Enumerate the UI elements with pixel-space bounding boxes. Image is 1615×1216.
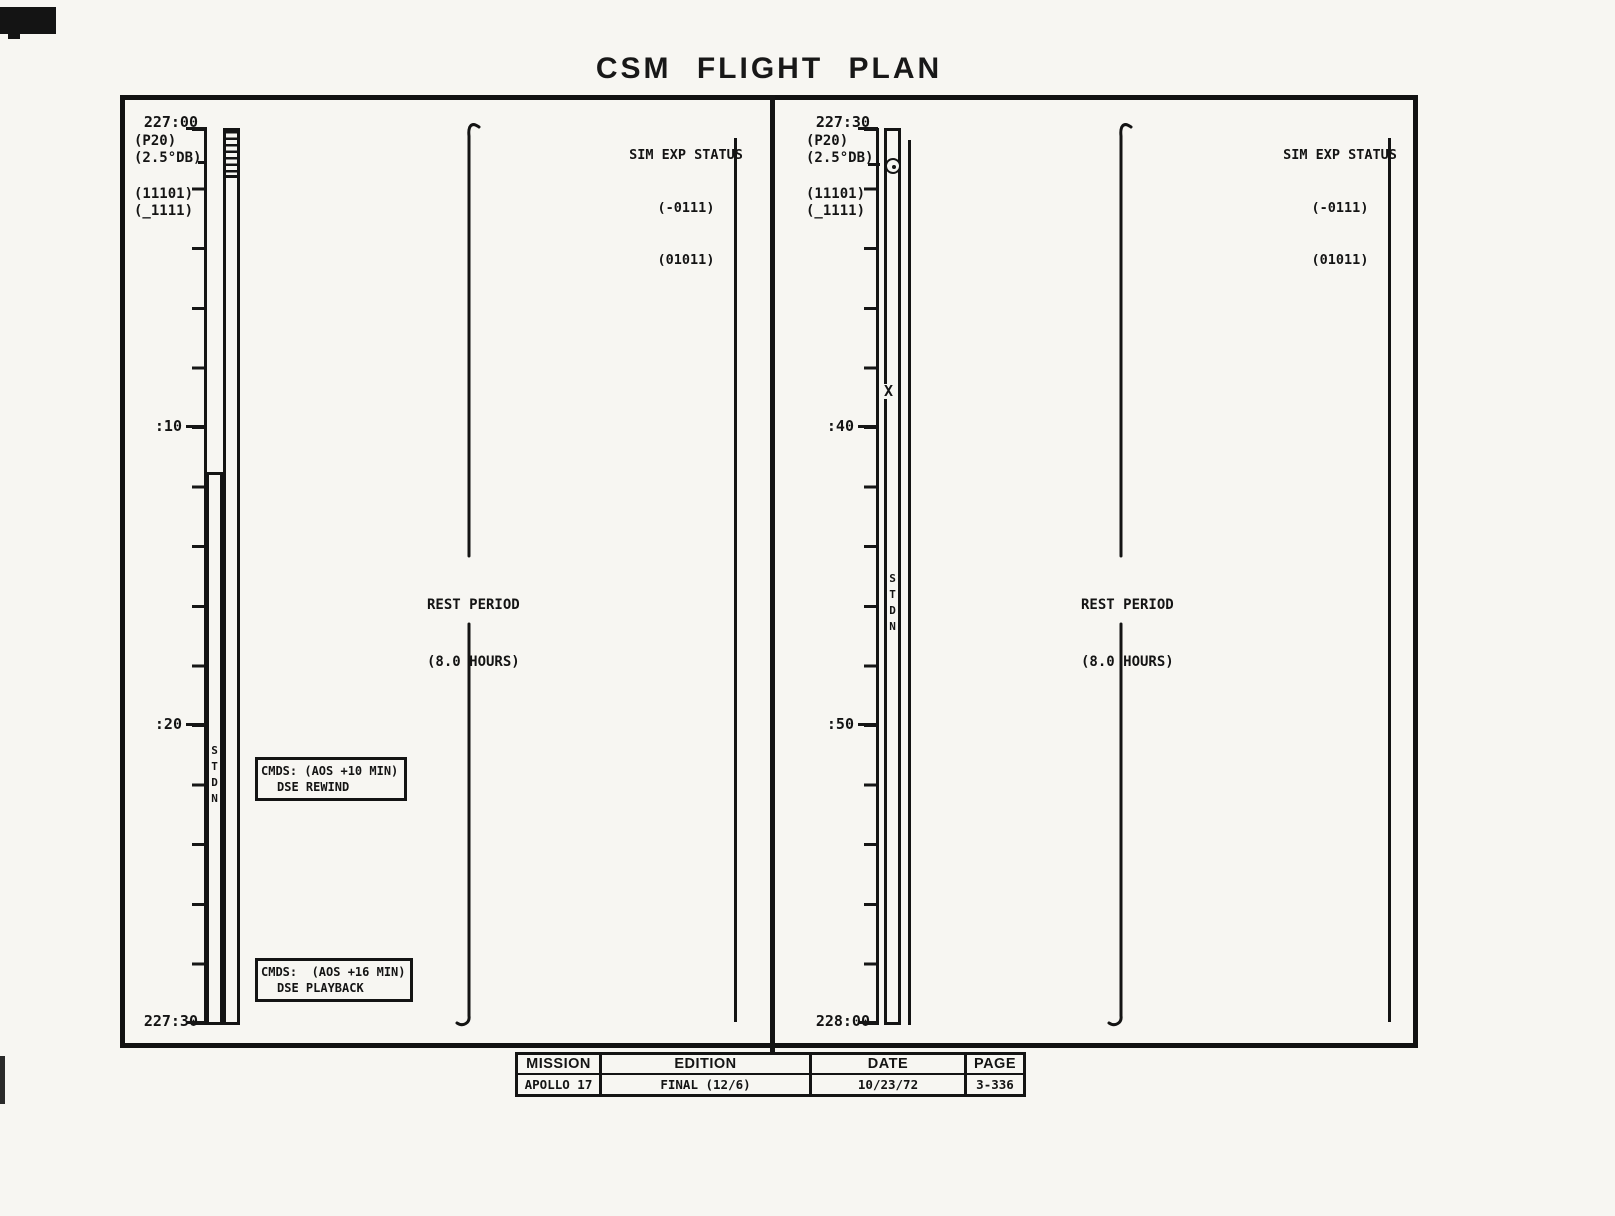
major-tick — [858, 723, 877, 726]
minor-ticks — [864, 128, 876, 1025]
program-label: (P20) — [806, 133, 848, 150]
tick-label-50: :50 — [800, 715, 854, 733]
program-label: (P20) — [134, 133, 176, 150]
sim-exp-status-line — [734, 138, 737, 1022]
footer-value-edition: FINAL (12/6) — [602, 1075, 812, 1094]
sim-exp-status-value1: (-0111) — [1252, 200, 1428, 218]
cmds-playback-box: CMDS: (AOS +16 MIN) DSE PLAYBACK — [255, 958, 413, 1002]
cmds-rewind-line1: CMDS: (AOS +10 MIN) — [261, 763, 401, 779]
sim-exp-status-title: SIM EXP STATUS — [1252, 147, 1428, 165]
rest-period-label: REST PERIOD (8.0 HOURS) — [427, 558, 520, 710]
footer-header-page: PAGE — [967, 1055, 1023, 1075]
dse-bar — [223, 128, 240, 1025]
activity-line — [908, 140, 911, 1025]
major-tick — [858, 425, 877, 428]
x-marker: X — [883, 384, 894, 399]
stdn-bar: STDN — [206, 472, 223, 1025]
footer-value-mission: APOLLO 17 — [518, 1075, 602, 1094]
stdn-bar: STDN — [884, 128, 901, 1025]
cmds-rewind-box: CMDS: (AOS +10 MIN) DSE REWIND — [255, 757, 407, 801]
major-tick — [858, 127, 877, 130]
sim-exp-status-value1: (-0111) — [598, 200, 774, 218]
tick-label-40: :40 — [800, 417, 854, 435]
scan-artifact-top-left — [0, 7, 56, 34]
major-tick — [186, 425, 205, 428]
attitude-circle-icon — [885, 158, 901, 174]
config-label-2: (_1111) — [806, 203, 865, 220]
config-label-1: (11101) — [806, 186, 865, 203]
sim-exp-status-title: SIM EXP STATUS — [598, 147, 774, 165]
stdn-letters: STDN — [209, 743, 220, 807]
tick-label-10: :10 — [128, 417, 182, 435]
stdn-letters: STDN — [887, 571, 898, 635]
footer-value-page: 3-336 — [967, 1075, 1023, 1094]
time-label-end: 227:30 — [124, 1012, 198, 1030]
footer-header-mission: MISSION — [518, 1055, 602, 1075]
config-label-1: (11101) — [134, 186, 193, 203]
sim-exp-status: SIM EXP STATUS (-0111) (01011) — [598, 112, 774, 305]
sim-exp-status-value2: (01011) — [1252, 252, 1428, 270]
sim-exp-status: SIM EXP STATUS (-0111) (01011) — [1252, 112, 1428, 305]
footer-table: MISSION EDITION DATE PAGE APOLLO 17 FINA… — [515, 1052, 1026, 1097]
major-tick — [186, 723, 205, 726]
tick-label-20: :20 — [128, 715, 182, 733]
scan-artifact-top-left-2 — [8, 32, 20, 39]
cmds-playback-line1: CMDS: (AOS +16 MIN) — [261, 964, 407, 980]
flight-plan-page: CSM FLIGHT PLAN 227:00 (P20) (2.5°DB) (1… — [0, 0, 1615, 1216]
cmds-playback-line2: DSE PLAYBACK — [261, 980, 407, 996]
sim-exp-status-line — [1388, 138, 1391, 1022]
time-label-end: 228:00 — [796, 1012, 870, 1030]
config-label-2: (_1111) — [134, 203, 193, 220]
footer-header-edition: EDITION — [602, 1055, 812, 1075]
scan-artifact-left-edge — [0, 1056, 5, 1104]
cmds-rewind-line2: DSE REWIND — [261, 779, 401, 795]
major-tick — [186, 127, 205, 130]
sim-exp-status-value2: (01011) — [598, 252, 774, 270]
minor-ticks — [192, 128, 204, 1025]
time-axis — [876, 128, 879, 1025]
footer-header-date: DATE — [812, 1055, 967, 1075]
dse-bar-hatch — [226, 131, 237, 178]
footer-value-date: 10/23/72 — [812, 1075, 967, 1094]
rest-period-label: REST PERIOD (8.0 HOURS) — [1081, 558, 1174, 710]
page-title: CSM FLIGHT PLAN — [120, 52, 1418, 86]
